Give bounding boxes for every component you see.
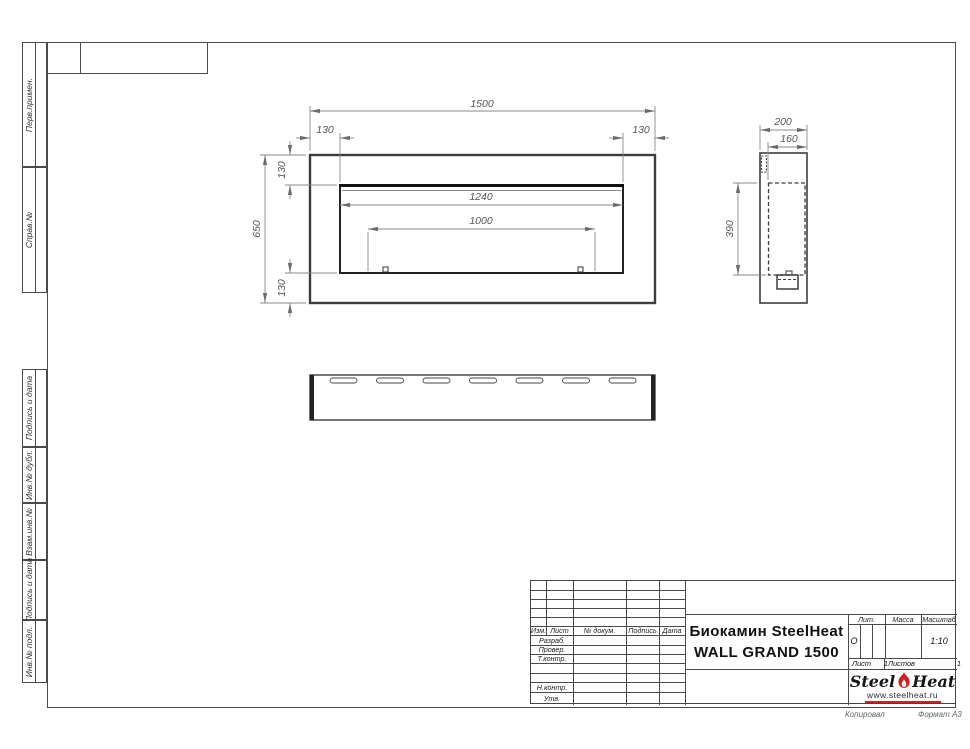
grid-line: [626, 581, 627, 705]
col-podpis: Подпись: [626, 626, 659, 635]
grid-line: [531, 617, 685, 618]
row-razrab: Разраб.: [531, 635, 573, 645]
sheet-label: Лист: [852, 659, 871, 668]
title-block: Изм. Лист № докум. Подпись Дата Разраб. …: [530, 580, 956, 704]
mass-label: Масса: [885, 614, 921, 624]
grid-line: [531, 608, 685, 609]
row-tkontr: Т.контр.: [531, 654, 573, 663]
dim-front-total-width: 1500: [470, 98, 494, 110]
logo-wordmark: Steel Heat: [850, 672, 955, 689]
sheets-cell: Листов 1: [884, 658, 965, 669]
side-view-dimension-lines: [733, 125, 807, 275]
drawing-sheet: Перв.примен. Справ.№ Подпись и дата Инв.…: [0, 0, 970, 749]
grid-line: [860, 624, 861, 658]
logo-url: www.steelheat.ru: [867, 690, 938, 700]
col-docnum: № докум.: [573, 626, 626, 635]
grid-line: [573, 581, 574, 705]
sheets-value: 1: [957, 659, 961, 668]
dim-front-flange-right: 130: [632, 124, 650, 136]
col-list: Лист: [546, 626, 573, 635]
grid-line: [531, 590, 685, 591]
lit-label: Лит.: [848, 614, 885, 624]
flame-icon: [897, 672, 911, 689]
grid-line: [531, 663, 685, 664]
dim-front-flange-bottom: 130: [276, 279, 288, 297]
scale-value: 1:10: [921, 624, 957, 658]
dim-front-opening-width: 1240: [469, 191, 493, 203]
dim-front-flange-left: 130: [316, 124, 334, 136]
steelheat-logo: Steel Heat www.steelheat.ru: [848, 669, 957, 705]
grid-line: [531, 599, 685, 600]
sheets-label: Листов: [888, 659, 915, 668]
lit-value: О: [848, 624, 860, 658]
dim-front-burner-length: 1000: [469, 215, 493, 227]
front-view-dimension-lines: [260, 106, 669, 317]
dim-side-opening-height: 390: [724, 220, 736, 238]
dim-side-depth: 200: [773, 116, 792, 128]
side-view: [760, 153, 807, 303]
dim-side-inner-depth: 160: [780, 133, 798, 145]
dim-front-flange-top: 130: [276, 161, 288, 179]
row-prover: Провер.: [531, 645, 573, 654]
logo-red-underline: [865, 701, 941, 703]
vent-slots: [330, 378, 636, 383]
grid-line: [531, 673, 685, 674]
document-title-line2: WALL GRAND 1500: [694, 642, 839, 663]
grid-line: [659, 581, 660, 705]
grid-line: [872, 624, 873, 658]
copy-note: Копировал: [845, 710, 885, 719]
document-title: Биокамин SteelHeat WALL GRAND 1500: [685, 614, 848, 669]
document-title-line1: Биокамин SteelHeat: [689, 621, 843, 642]
col-izm: Изм.: [531, 626, 546, 635]
logo-heat-text: Heat: [912, 674, 955, 689]
row-utv: Утв.: [531, 692, 573, 705]
format-note: Формат А3: [918, 710, 962, 719]
col-data: Дата: [659, 626, 685, 635]
scale-label: Масштаб: [921, 614, 957, 624]
bottom-view: [310, 375, 655, 420]
row-nkontr: Н.контр.: [531, 682, 573, 692]
logo-steel-text: Steel: [850, 674, 895, 689]
dim-front-total-height: 650: [251, 220, 263, 238]
